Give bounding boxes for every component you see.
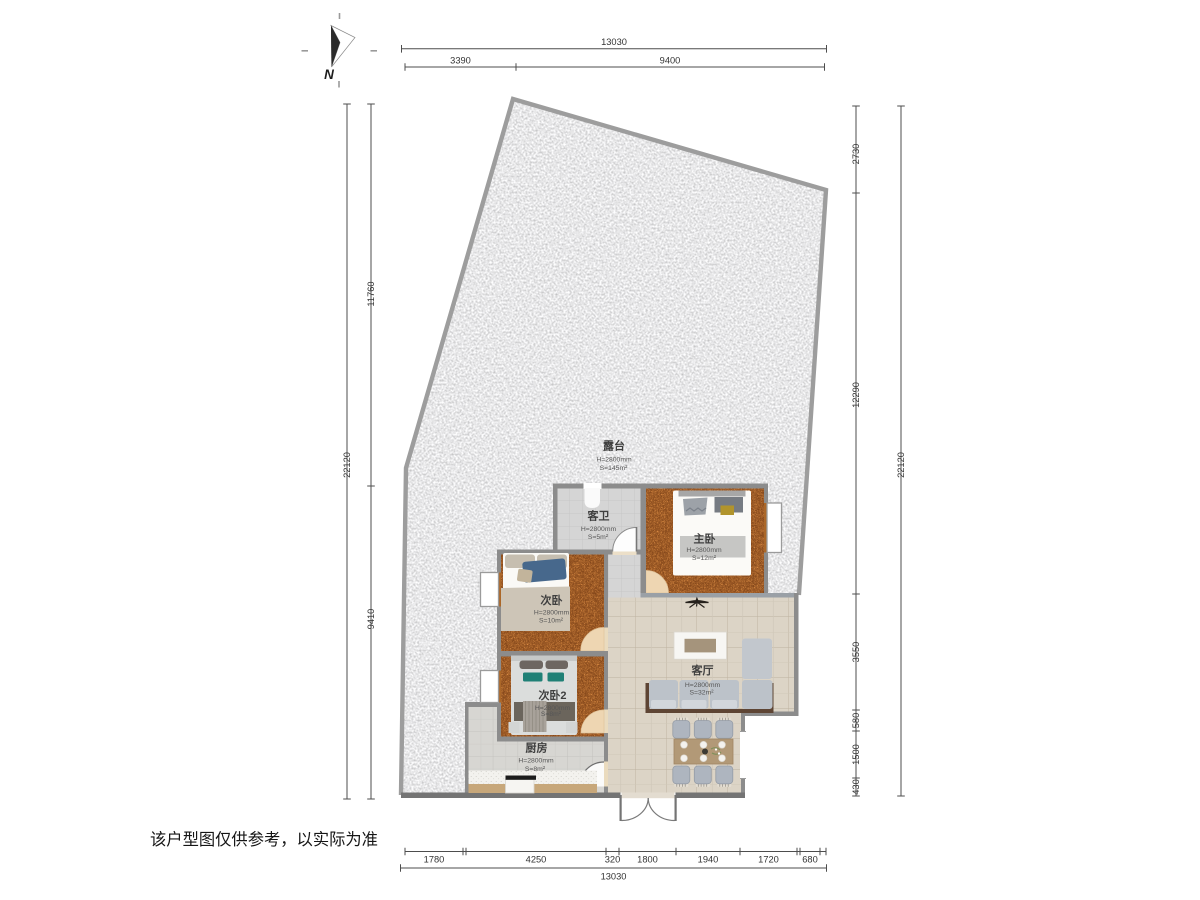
svg-text:N: N (324, 67, 334, 82)
svg-text:S=8m²: S=8m² (525, 766, 546, 773)
svg-text:1800: 1800 (637, 855, 658, 865)
svg-text:1940: 1940 (698, 855, 719, 865)
svg-text:22120: 22120 (342, 452, 352, 478)
svg-text:次卧: 次卧 (541, 593, 563, 607)
svg-text:客卫: 客卫 (587, 509, 610, 523)
svg-text:H=2800mm: H=2800mm (518, 758, 554, 765)
svg-text:H=2800mm: H=2800mm (686, 547, 722, 554)
svg-text:H=2800mm: H=2800mm (581, 526, 617, 533)
svg-text:9400: 9400 (660, 55, 681, 65)
svg-text:2730: 2730 (851, 144, 861, 165)
svg-text:主卧: 主卧 (694, 532, 716, 546)
svg-text:430: 430 (851, 779, 861, 795)
svg-text:H=2800mm: H=2800mm (534, 610, 570, 617)
svg-text:H=2800mm: H=2800mm (685, 682, 721, 689)
svg-text:3390: 3390 (450, 55, 471, 65)
svg-text:13030: 13030 (601, 37, 627, 47)
svg-text:3550: 3550 (851, 642, 861, 663)
svg-text:13030: 13030 (601, 872, 627, 882)
svg-text:320: 320 (605, 855, 621, 865)
svg-text:4250: 4250 (526, 855, 547, 865)
svg-text:22120: 22120 (896, 452, 906, 478)
svg-text:680: 680 (802, 855, 818, 865)
svg-text:S=8m²: S=8m² (541, 711, 562, 718)
svg-text:9410: 9410 (366, 609, 376, 630)
svg-text:11760: 11760 (366, 281, 376, 306)
svg-text:该户型图仅供参考，以实际为准: 该户型图仅供参考，以实际为准 (150, 831, 378, 849)
svg-text:S=32m²: S=32m² (690, 690, 715, 697)
svg-text:1780: 1780 (424, 855, 445, 865)
svg-text:H=2800mm: H=2800mm (596, 457, 632, 464)
svg-text:S=10m²: S=10m² (539, 618, 564, 625)
svg-text:露台: 露台 (603, 439, 625, 453)
svg-text:1720: 1720 (758, 855, 779, 865)
svg-text:次卧2: 次卧2 (538, 688, 566, 702)
svg-text:S=5m²: S=5m² (588, 534, 609, 541)
svg-text:12290: 12290 (851, 382, 861, 408)
svg-text:580: 580 (851, 713, 861, 729)
svg-text:厨房: 厨房 (526, 741, 548, 755)
svg-text:S=145m²: S=145m² (600, 465, 629, 472)
svg-text:客厅: 客厅 (691, 663, 714, 677)
svg-text:S=12m²: S=12m² (692, 555, 717, 562)
svg-text:1500: 1500 (851, 744, 861, 765)
